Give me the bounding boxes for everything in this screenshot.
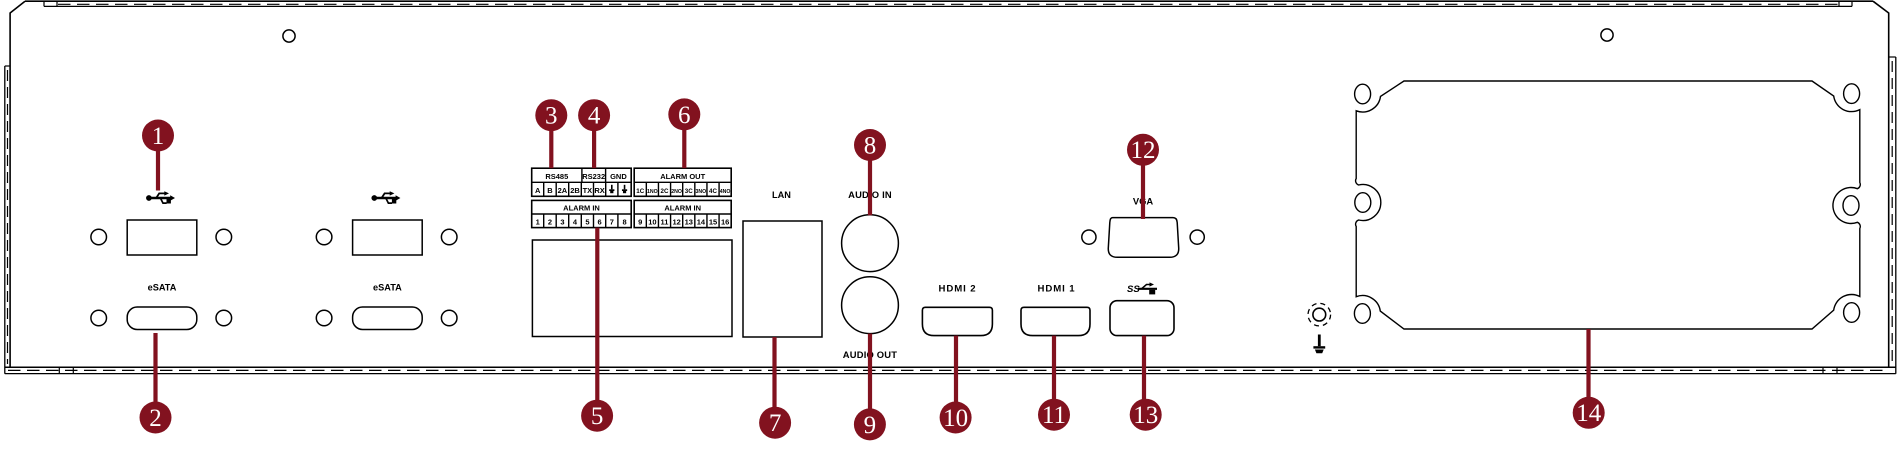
svg-text:4NO: 4NO: [720, 189, 731, 195]
svg-text:A: A: [535, 186, 541, 195]
svg-text:TX: TX: [583, 186, 593, 195]
svg-text:GND: GND: [610, 172, 627, 181]
svg-text:9: 9: [638, 217, 642, 226]
svg-text:4: 4: [573, 217, 578, 226]
svg-text:4: 4: [588, 103, 601, 130]
svg-text:3: 3: [560, 217, 564, 226]
svg-text:LAN: LAN: [772, 190, 791, 200]
svg-text:7: 7: [610, 217, 614, 226]
svg-text:ALARM IN: ALARM IN: [664, 204, 701, 213]
svg-text:11: 11: [1042, 402, 1066, 429]
svg-text:13: 13: [1133, 402, 1158, 429]
svg-text:15: 15: [709, 217, 717, 226]
svg-text:5: 5: [585, 217, 589, 226]
svg-text:2NO: 2NO: [671, 189, 682, 195]
svg-text:14: 14: [1576, 400, 1602, 427]
svg-text:6: 6: [598, 217, 602, 226]
svg-text:RX: RX: [594, 186, 604, 195]
svg-text:10: 10: [648, 217, 656, 226]
svg-text:8: 8: [622, 217, 626, 226]
svg-text:eSATA: eSATA: [148, 283, 177, 293]
svg-text:HDMI 2: HDMI 2: [939, 284, 977, 295]
svg-text:3NO: 3NO: [696, 189, 707, 195]
svg-text:7: 7: [769, 410, 782, 437]
svg-text:12: 12: [672, 217, 680, 226]
svg-text:2: 2: [548, 217, 552, 226]
svg-text:3: 3: [545, 103, 558, 130]
svg-text:4C: 4C: [709, 188, 717, 195]
svg-text:16: 16: [721, 217, 729, 226]
svg-text:5: 5: [591, 403, 604, 430]
svg-text:eSATA: eSATA: [373, 283, 402, 293]
svg-text:8: 8: [864, 132, 877, 159]
svg-text:10: 10: [943, 405, 968, 432]
svg-text:6: 6: [678, 102, 691, 129]
svg-text:2A: 2A: [558, 186, 568, 195]
svg-text:2B: 2B: [570, 186, 580, 195]
svg-text:B: B: [547, 186, 553, 195]
svg-text:13: 13: [685, 217, 693, 226]
svg-text:2C: 2C: [661, 188, 669, 195]
svg-text:9: 9: [864, 412, 877, 439]
svg-text:2: 2: [149, 405, 162, 432]
svg-text:12: 12: [1131, 137, 1156, 164]
svg-text:1C: 1C: [636, 188, 644, 195]
svg-text:1NO: 1NO: [647, 189, 658, 195]
svg-text:11: 11: [661, 217, 669, 226]
svg-text:3C: 3C: [685, 188, 693, 195]
svg-text:ALARM IN: ALARM IN: [563, 204, 600, 213]
svg-text:RS232: RS232: [582, 172, 605, 181]
svg-text:RS485: RS485: [545, 172, 568, 181]
svg-text:1: 1: [536, 217, 540, 226]
svg-text:ALARM OUT: ALARM OUT: [660, 172, 705, 181]
svg-text:14: 14: [697, 217, 706, 226]
svg-text:HDMI 1: HDMI 1: [1038, 284, 1076, 295]
svg-text:1: 1: [152, 123, 165, 150]
